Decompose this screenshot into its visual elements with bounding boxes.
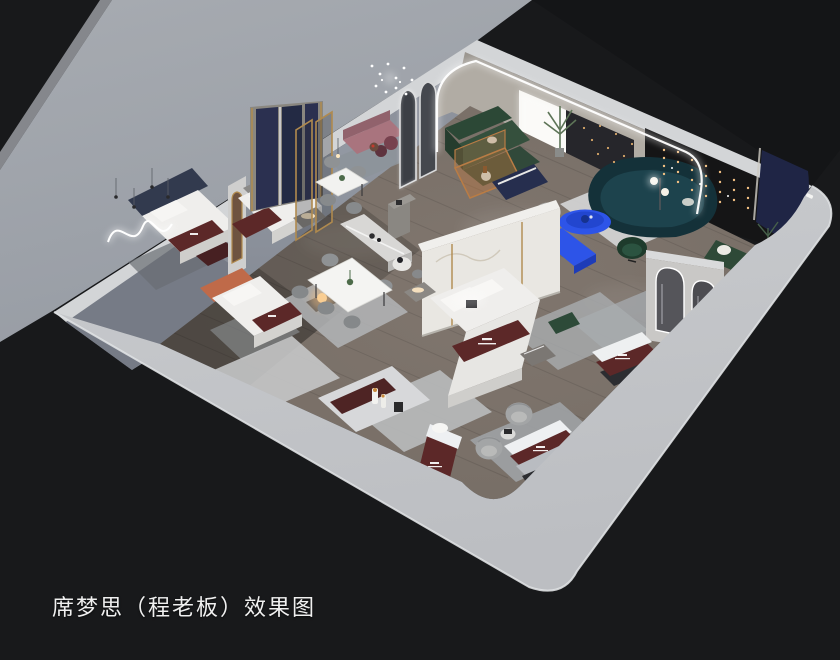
showroom-render xyxy=(0,0,840,660)
caption: 席梦思（程老板）效果图 xyxy=(52,590,316,622)
render-canvas: 席梦思（程老板）效果图 xyxy=(0,0,840,660)
blue-coffee-table xyxy=(559,210,611,235)
